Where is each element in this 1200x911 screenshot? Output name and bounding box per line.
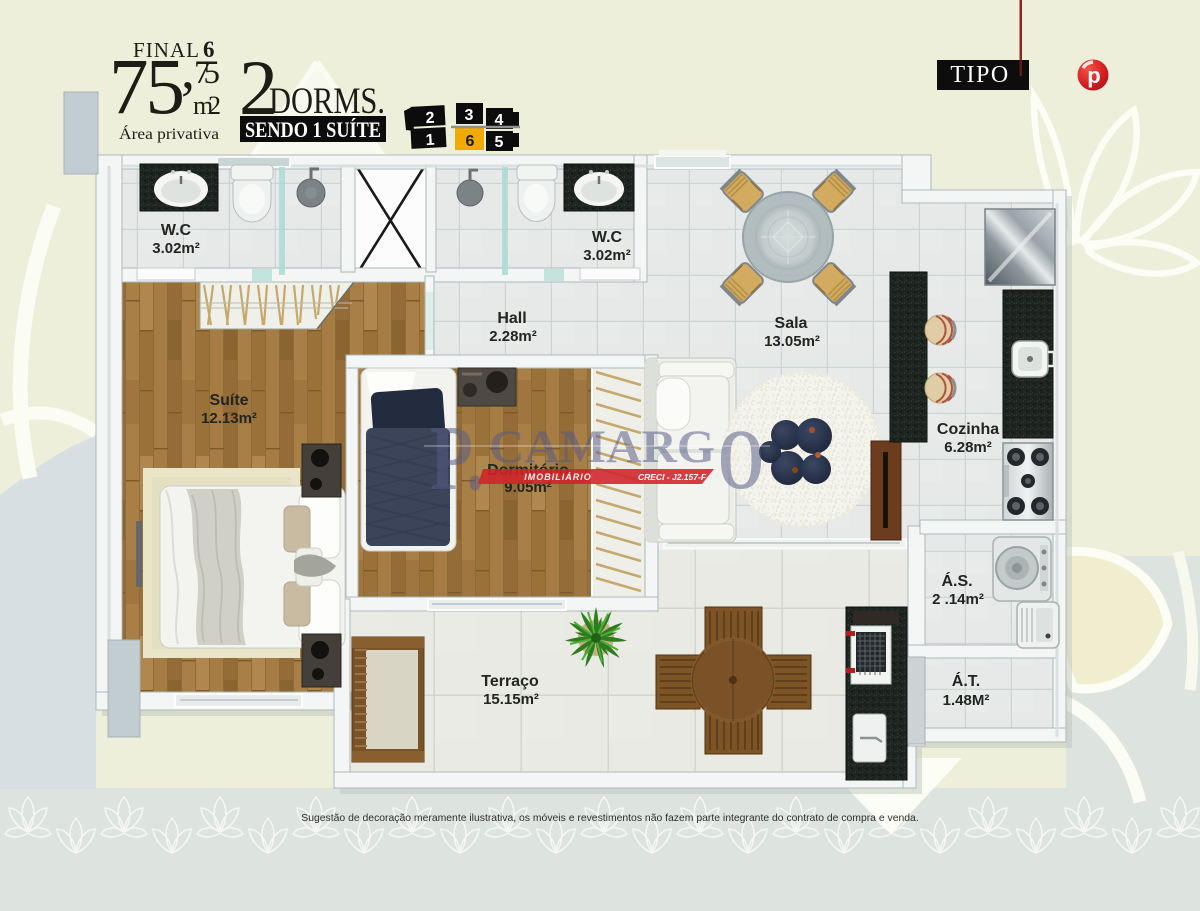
svg-text:75: 75 (109, 44, 185, 131)
svg-text:CRECI - J2.157-F: CRECI - J2.157-F (638, 472, 707, 482)
svg-text:Sala: Sala (775, 315, 808, 332)
svg-text:Suíte: Suíte (209, 392, 248, 409)
svg-text:SENDO 1 SUÍTE: SENDO 1 SUÍTE (245, 117, 381, 142)
svg-text:Cozinha: Cozinha (937, 421, 999, 438)
svg-text:p: p (1087, 63, 1100, 88)
svg-text:1.48M²: 1.48M² (943, 692, 990, 709)
svg-text:3: 3 (465, 107, 474, 124)
svg-text:15.15m²: 15.15m² (483, 691, 539, 708)
svg-text:12.13m²: 12.13m² (201, 410, 257, 427)
svg-text:Área privativa: Área privativa (119, 126, 219, 143)
svg-text:13.05m²: 13.05m² (764, 333, 820, 350)
svg-text:6.28m²: 6.28m² (944, 439, 992, 456)
svg-text:DORMS.: DORMS. (269, 81, 385, 122)
svg-text:Sugestão de decoração merament: Sugestão de decoração meramente ilustrat… (301, 813, 918, 824)
svg-text:2 .14m²: 2 .14m² (932, 591, 984, 608)
svg-text:Terraço: Terraço (481, 673, 539, 690)
svg-text:2: 2 (425, 110, 435, 127)
svg-text:6: 6 (466, 133, 475, 150)
svg-text:Hall: Hall (497, 310, 526, 327)
svg-text:m2: m2 (193, 91, 221, 120)
svg-text:W.C: W.C (592, 229, 623, 246)
svg-text:75: 75 (194, 55, 220, 91)
svg-text:4: 4 (495, 112, 504, 129)
svg-text:Á.S.: Á.S. (941, 571, 972, 590)
svg-text:IMOBILIÁRIO: IMOBILIÁRIO (524, 472, 592, 482)
svg-text:3.02m²: 3.02m² (583, 247, 631, 264)
svg-text:P.: P. (430, 407, 484, 510)
svg-text:2.28m²: 2.28m² (489, 328, 537, 345)
svg-text:O: O (718, 411, 764, 507)
svg-text:TIPO: TIPO (950, 62, 1009, 88)
svg-text:W.C: W.C (161, 222, 192, 239)
svg-text:CAMARG: CAMARG (489, 421, 715, 473)
svg-text:1: 1 (425, 132, 435, 149)
svg-text:3.02m²: 3.02m² (152, 240, 200, 257)
svg-text:5: 5 (495, 134, 504, 151)
svg-text:Á.T.: Á.T. (952, 671, 980, 690)
